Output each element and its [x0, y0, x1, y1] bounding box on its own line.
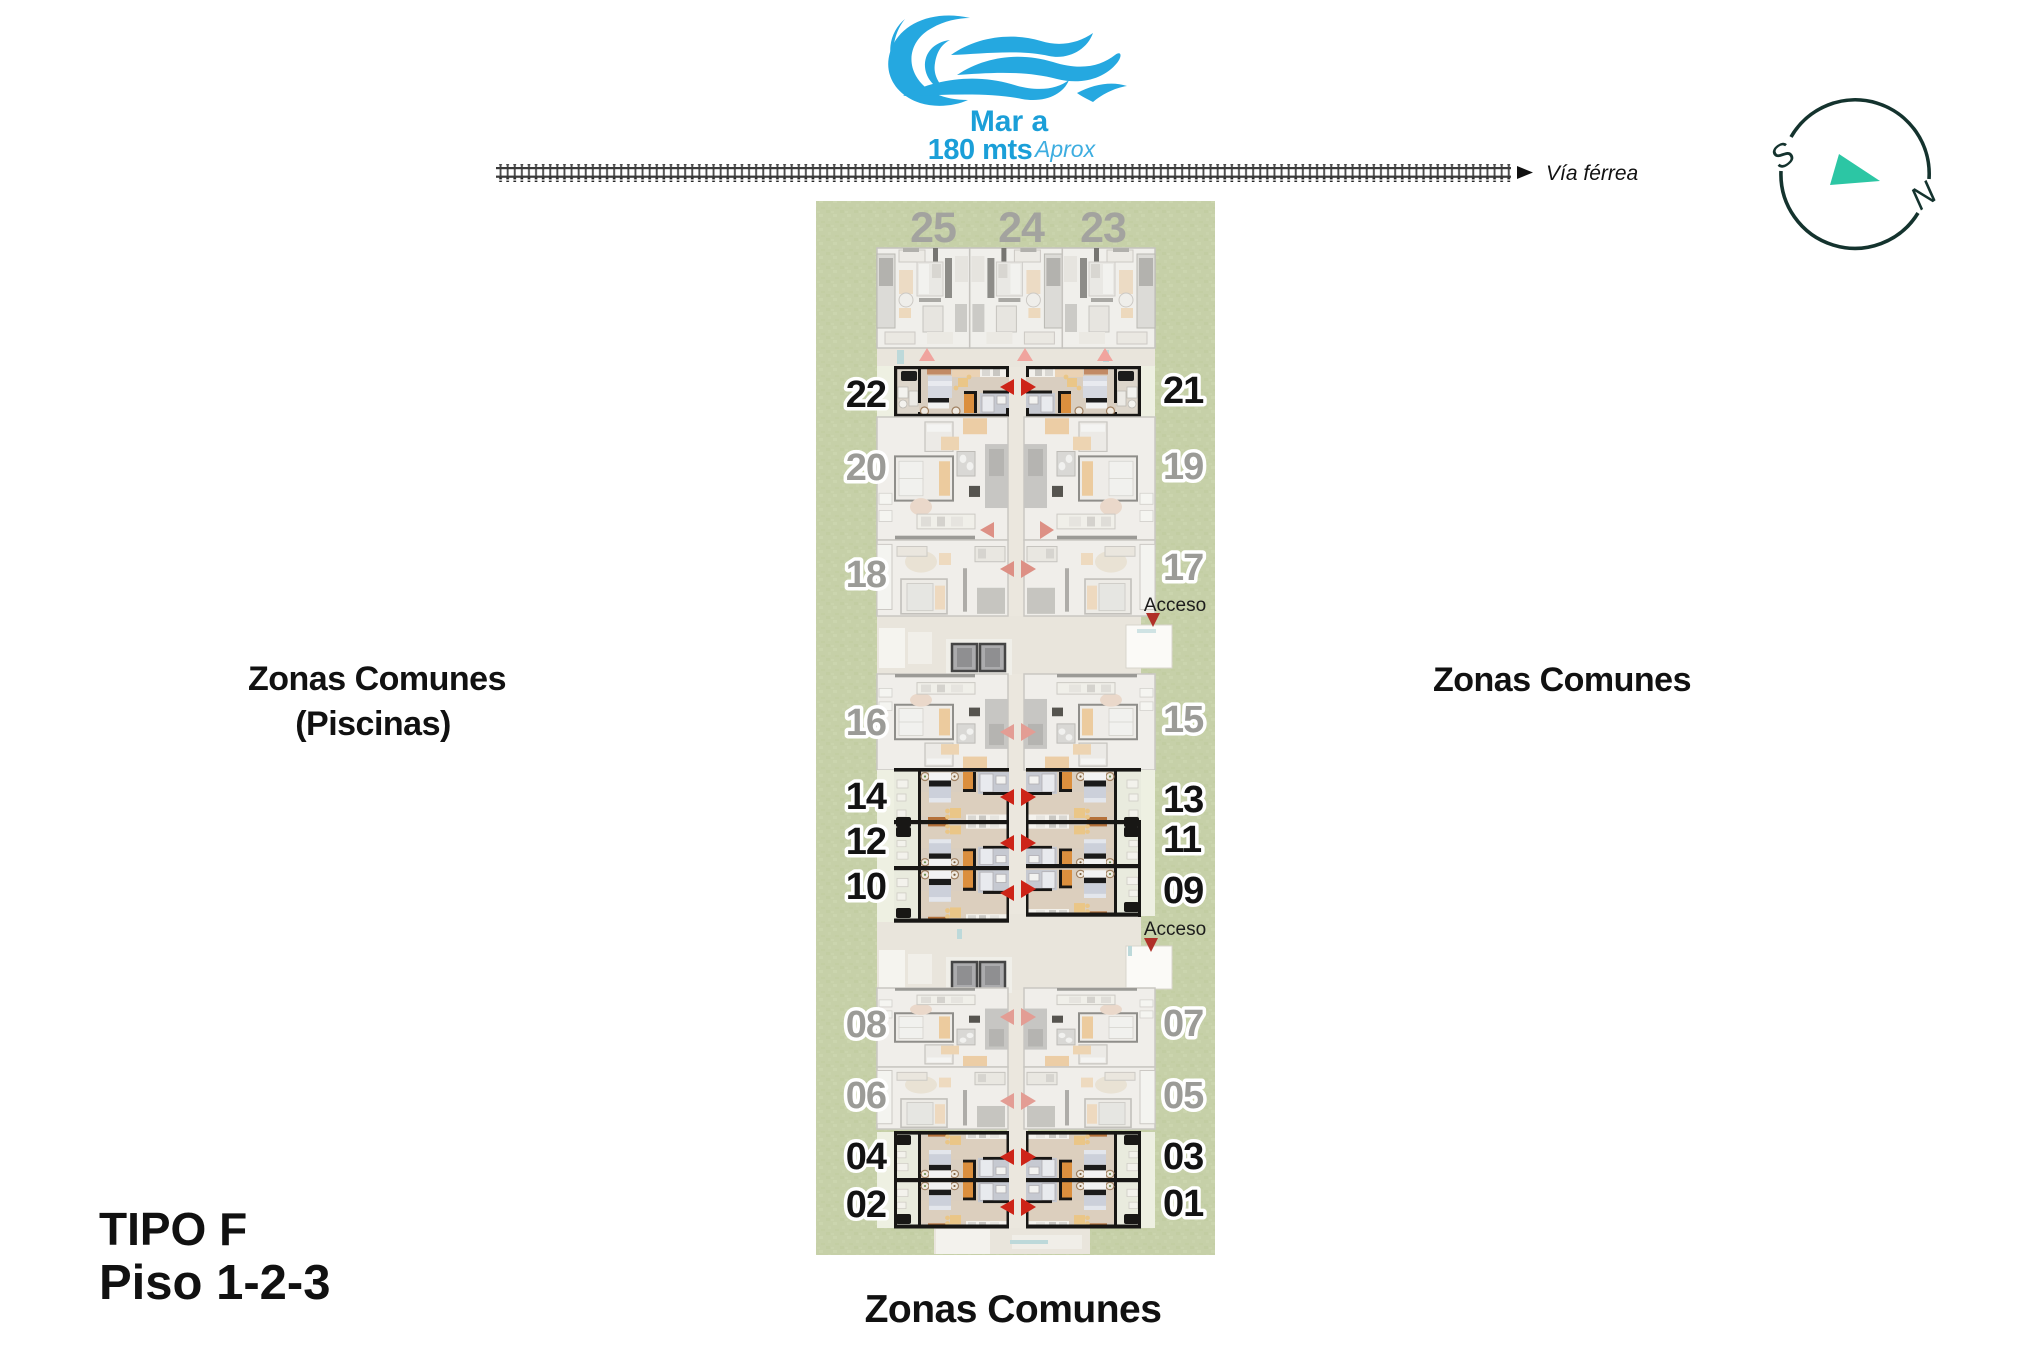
svg-text:09: 09 [1163, 870, 1203, 912]
svg-text:19: 19 [1163, 446, 1203, 488]
svg-text:17: 17 [1163, 547, 1203, 589]
svg-text:Zonas Comunes: Zonas Comunes [1433, 661, 1691, 699]
svg-text:01: 01 [1163, 1183, 1204, 1225]
svg-text:Zonas Comunes: Zonas Comunes [865, 1288, 1162, 1331]
svg-text:04: 04 [846, 1136, 887, 1178]
svg-text:21: 21 [1163, 370, 1204, 412]
svg-text:20: 20 [846, 447, 886, 489]
svg-text:11: 11 [1163, 819, 1202, 861]
svg-text:Vía férrea: Vía férrea [1546, 162, 1638, 185]
svg-text:06: 06 [846, 1075, 886, 1117]
svg-text:Acceso: Acceso [1144, 919, 1206, 940]
svg-text:Zonas Comunes: Zonas Comunes [248, 660, 506, 698]
svg-text:180 mts: 180 mts [928, 134, 1033, 166]
svg-text:13: 13 [1163, 779, 1203, 821]
svg-text:Piso 1-2-3: Piso 1-2-3 [99, 1256, 330, 1310]
svg-text:10: 10 [846, 866, 886, 908]
svg-text:TIPO F: TIPO F [99, 1203, 247, 1255]
svg-text:16: 16 [846, 702, 886, 744]
svg-text:Acceso: Acceso [1144, 595, 1206, 616]
svg-text:(Piscinas): (Piscinas) [295, 705, 451, 743]
svg-text:02: 02 [846, 1184, 886, 1226]
svg-text:15: 15 [1163, 699, 1204, 741]
svg-text:22: 22 [846, 374, 886, 416]
svg-text:Aprox: Aprox [1033, 136, 1097, 162]
svg-text:18: 18 [846, 554, 886, 596]
svg-text:25: 25 [910, 204, 956, 252]
svg-text:08: 08 [846, 1004, 886, 1046]
svg-text:24: 24 [998, 204, 1045, 252]
svg-text:03: 03 [1163, 1136, 1203, 1178]
svg-text:07: 07 [1163, 1003, 1203, 1045]
svg-text:05: 05 [1163, 1075, 1204, 1117]
svg-text:12: 12 [846, 821, 886, 863]
svg-text:14: 14 [846, 776, 887, 818]
svg-text:23: 23 [1080, 204, 1126, 252]
